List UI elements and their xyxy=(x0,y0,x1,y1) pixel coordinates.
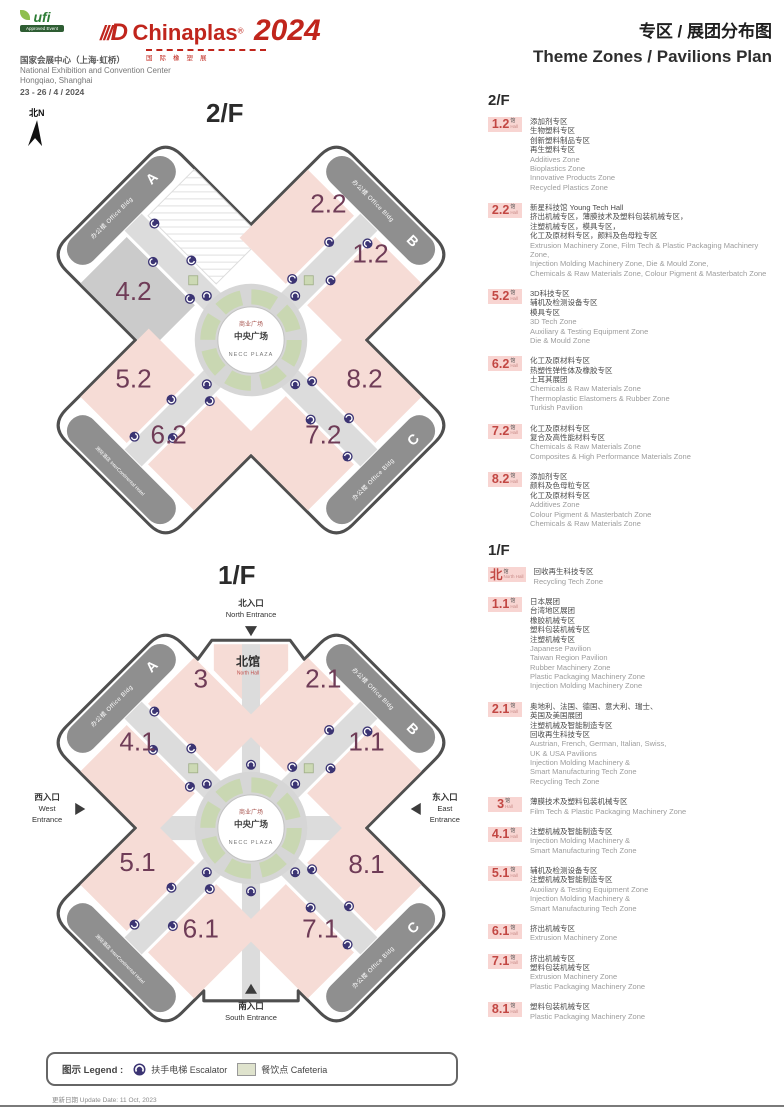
hall-number-4-1: 4.1 xyxy=(119,727,155,757)
zones-en: Auxiliary & Testing Equipment Zone Injec… xyxy=(530,885,774,913)
hall-suffix-en: Hall xyxy=(510,211,518,216)
hall-number-2-2: 2.2 xyxy=(310,188,346,218)
hall-suffix-en: Hall xyxy=(510,710,518,715)
escalator-icon xyxy=(202,379,212,389)
zones-zh: 化工及原材料专区 复合及高性能材料专区 xyxy=(530,424,774,443)
hall-section-2-2: 2.2 馆Hall 新星科技馆 Young Tech Hall 挤出机械专区，薄… xyxy=(488,203,778,278)
hall-number-4-2: 4.2 xyxy=(115,276,151,306)
plaza-label-bottom: NECC PLAZA xyxy=(229,352,274,358)
event-dates: 23 - 26 / 4 / 2024 xyxy=(20,87,171,98)
hall-number: 8.1 xyxy=(492,1003,509,1016)
venue-en: National Exhibition and Convention Cente… xyxy=(20,66,171,76)
cafeteria-marker xyxy=(189,276,198,285)
plaza-label-bottom: NECC PLAZA xyxy=(229,840,274,846)
zones-en: 3D Tech Zone Auxiliary & Testing Equipme… xyxy=(530,317,774,345)
page-title-zh: 专区 / 展团分布图 xyxy=(533,20,772,45)
hall-number: 5.2 xyxy=(492,290,509,303)
hall-number-5-2: 5.2 xyxy=(115,363,151,393)
hall-section-1-2: 1.2 馆Hall 添加剂专区 生物塑料专区 创新塑料制品专区 再生塑料专区Ad… xyxy=(488,117,778,192)
zones-zh: 3D科技专区 辅机及检测设备专区 模具专区 xyxy=(530,289,774,317)
hall-number-1-1: 1.1 xyxy=(348,727,384,757)
east-entrance-en1: East xyxy=(437,804,453,813)
zones-zh: 化工及原材料专区 热塑性弹性体及橡胶专区 土耳其展团 xyxy=(530,356,774,384)
hall-section-2-1: 2.1 馆Hall 奥地利、法国、德国、意大利、瑞士、 英国及美国展团 注塑机械… xyxy=(488,702,778,786)
hall-number-7-2: 7.2 xyxy=(305,420,341,450)
zones-zh: 辅机及检测设备专区 注塑机械及智能制造专区 xyxy=(530,866,774,885)
update-date: 更新日期 Update Date: 11 Oct, 2023 xyxy=(52,1094,157,1104)
hall-suffix-en: Hall xyxy=(510,1010,518,1015)
hall-number-8-1: 8.1 xyxy=(348,849,384,879)
legend-escalator-label: 扶手电梯 Escalator xyxy=(151,1063,227,1076)
hall-badge: 北 馆North Hall xyxy=(488,567,526,582)
hall-section-6-2: 6.2 馆Hall 化工及原材料专区 热塑性弹性体及橡胶专区 土耳其展团Chem… xyxy=(488,356,778,412)
zones-en: Chemicals & Raw Materials Zone Composite… xyxy=(530,442,774,461)
hall-section-north: 北 馆North Hall 回收再生科技专区Recycling Tech Zon… xyxy=(488,567,778,586)
zone-listing-sidebar: 2/F 1.2 馆Hall 添加剂专区 生物塑料专区 创新塑料制品专区 再生塑料… xyxy=(488,92,778,1032)
hall-suffix-en: Hall xyxy=(510,874,518,879)
logo-slashes: /// xyxy=(100,23,111,45)
hall-badge: 8.2 馆Hall xyxy=(488,472,522,487)
plaza-label-top: 商业广场 xyxy=(239,320,263,328)
escalator-icon xyxy=(290,779,300,789)
hall-suffix-en: North Hall xyxy=(504,575,524,580)
north-entrance-en: North Entrance xyxy=(226,610,277,619)
hall-section-7-2: 7.2 馆Hall 化工及原材料专区 复合及高性能材料专区Chemicals &… xyxy=(488,424,778,462)
ufi-logo: ufi Approved Event xyxy=(20,10,64,32)
registered-mark: ® xyxy=(238,27,244,36)
plaza-label-mid: 中央广场 xyxy=(234,331,269,341)
hall-suffix-en: Hall xyxy=(510,125,518,130)
hall-number-5-1: 5.1 xyxy=(119,847,155,877)
escalator-icon xyxy=(246,760,256,770)
hall-section-1-1: 1.1 馆Hall 日本展团 台湾地区展团 橡胶机械专区 塑料包装机械专区 注塑… xyxy=(488,597,778,691)
escalator-icon xyxy=(246,886,256,896)
escalator-icon xyxy=(290,379,300,389)
down-arrow-icon xyxy=(245,626,257,636)
hall-number: 7.2 xyxy=(492,425,509,438)
plaza-label-top: 商业广场 xyxy=(239,808,263,816)
hall-suffix-en: Hall xyxy=(510,297,518,302)
zones-zh: 日本展团 台湾地区展团 橡胶机械专区 塑料包装机械专区 注塑机械专区 xyxy=(530,597,774,644)
hall-number: 8.2 xyxy=(492,473,509,486)
zones-en: Chemicals & Raw Materials Zone Thermopla… xyxy=(530,384,774,412)
escalator-icon xyxy=(202,779,212,789)
venue-address: 国家会展中心（上海·虹桥） National Exhibition and Co… xyxy=(20,55,171,98)
west-entrance-zh: 西入口 xyxy=(34,792,60,802)
hall-badge: 1.1 馆Hall xyxy=(488,597,522,612)
hall-number: 4.1 xyxy=(492,828,509,841)
brand-name: Chinaplas xyxy=(132,20,237,45)
north-hall-zh: 北馆 xyxy=(236,653,260,668)
hall-suffix-en: Hall xyxy=(510,605,518,610)
escalator-icon xyxy=(290,291,300,301)
legend-cafeteria-label: 餐饮点 Cafeteria xyxy=(261,1063,327,1076)
hall-number-1-2: 1.2 xyxy=(352,239,388,269)
cafeteria-marker xyxy=(189,764,198,773)
hall-suffix-en: Hall xyxy=(505,805,513,810)
escalator-icon xyxy=(202,291,212,301)
hall-number-8-2: 8.2 xyxy=(346,363,382,393)
zones-en: Plastic Packaging Machinery Zone xyxy=(530,1012,774,1021)
zones-zh: 挤出机械专区 塑料包装机械专区 xyxy=(530,954,774,973)
zones-en: Austrian, French, German, Italian, Swiss… xyxy=(530,739,774,786)
west-entrance: 西入口 West Entrance xyxy=(32,792,85,824)
floor-map-1f: 办公楼 Office Bldg A 办公楼 Office Bldg B 洲际酒店… xyxy=(22,592,480,1044)
hall-suffix-en: Hall xyxy=(510,431,518,436)
hall-badge: 8.1 馆Hall xyxy=(488,1002,522,1017)
cafeteria-marker xyxy=(304,764,313,773)
escalator-icon xyxy=(202,867,212,877)
hall-badge: 1.2 馆Hall xyxy=(488,117,522,132)
legend-cafeteria: 餐饮点 Cafeteria xyxy=(237,1063,327,1076)
escalator-icon xyxy=(133,1063,146,1076)
north-arrow-icon xyxy=(28,120,42,146)
zones-en: Extrusion Machinery Zone xyxy=(530,933,774,942)
zones-zh: 塑料包装机械专区 xyxy=(530,1002,774,1011)
zones-zh: 挤出机械专区 xyxy=(530,924,774,933)
north-hall-en: North Hall xyxy=(237,670,259,676)
hall-number: 1.2 xyxy=(492,118,509,131)
east-entrance: 东入口 East Entrance xyxy=(411,792,460,824)
zones-zh: 添加剂专区 生物塑料专区 创新塑料制品专区 再生塑料专区 xyxy=(530,117,774,155)
page-bottom-rule xyxy=(0,1105,784,1107)
hall-number: 7.1 xyxy=(492,955,509,968)
hall-section-3: 3 馆Hall 薄膜技术及塑料包装机械专区Film Tech & Plastic… xyxy=(488,797,778,816)
brand-year: 2024 xyxy=(254,14,321,47)
zones-en: Film Tech & Plastic Packaging Machinery … xyxy=(530,807,774,816)
hall-section-6-1: 6.1 馆Hall 挤出机械专区Extrusion Machinery Zone xyxy=(488,924,778,943)
hall-number: 2.2 xyxy=(492,204,509,217)
legend-label: 图示 Legend : xyxy=(62,1062,123,1076)
west-entrance-en2: Entrance xyxy=(32,815,62,824)
south-entrance-zh: 南入口 xyxy=(238,1001,264,1011)
hall-number-3: 3 xyxy=(194,663,209,693)
hall-number: 6.1 xyxy=(492,925,509,938)
hall-section-7-1: 7.1 馆Hall 挤出机械专区 塑料包装机械专区Extrusion Machi… xyxy=(488,954,778,992)
hall-number: 2.1 xyxy=(492,703,509,716)
zones-zh: 奥地利、法国、德国、意大利、瑞士、 英国及美国展团 注塑机械及智能制造专区 回收… xyxy=(530,702,774,740)
page-title-en: Theme Zones / Pavilions Plan xyxy=(533,45,772,70)
legend-escalator: 扶手电梯 Escalator xyxy=(133,1063,227,1076)
hall-badge: 4.1 馆Hall xyxy=(488,827,522,842)
cafeteria-swatch-icon xyxy=(237,1063,256,1076)
escalator-icon xyxy=(290,867,300,877)
hall-number: 3 xyxy=(497,798,504,811)
zones-en: Japanese Pavilion Taiwan Region Pavilion… xyxy=(530,644,774,691)
hall-suffix-en: Hall xyxy=(510,835,518,840)
ufi-approved-label: Approved Event xyxy=(20,25,64,32)
zones-zh: 回收再生科技专区 xyxy=(534,567,778,576)
zones-zh: 新星科技馆 Young Tech Hall 挤出机械专区，薄膜技术及塑料包装机械… xyxy=(530,203,774,241)
hall-badge: 6.1 馆Hall xyxy=(488,924,522,939)
cafeteria-marker xyxy=(304,276,313,285)
hall-number-7-1: 7.1 xyxy=(302,914,338,944)
hall-section-5-2: 5.2 馆Hall 3D科技专区 辅机及检测设备专区 模具专区3D Tech Z… xyxy=(488,289,778,345)
hall-number: 1.1 xyxy=(492,598,509,611)
map-legend: 图示 Legend : 扶手电梯 Escalator 餐饮点 Cafeteria xyxy=(46,1052,458,1086)
zones-zh: 注塑机械及智能制造专区 xyxy=(530,827,774,836)
sidebar-header-2f: 2/F xyxy=(488,92,778,109)
hall-badge: 7.1 馆Hall xyxy=(488,954,522,969)
hall-suffix-en: Hall xyxy=(510,364,518,369)
hall-number-2-1: 2.1 xyxy=(305,663,341,693)
hall-section-5-1: 5.1 馆Hall 辅机及检测设备专区 注塑机械及智能制造专区Auxiliary… xyxy=(488,866,778,913)
sidebar-header-1f: 1/F xyxy=(488,542,778,559)
east-entrance-en2: Entrance xyxy=(430,815,460,824)
floor-label-1f: 1/F xyxy=(218,560,256,591)
hall-section-8-1: 8.1 馆Hall 塑料包装机械专区Plastic Packaging Mach… xyxy=(488,1002,778,1021)
zones-zh: 添加剂专区 颜料及色母粒专区 化工及原材料专区 xyxy=(530,472,774,500)
hall-section-4-1: 4.1 馆Hall 注塑机械及智能制造专区Injection Molding M… xyxy=(488,827,778,855)
plaza-label-mid: 中央广场 xyxy=(234,819,269,829)
hall-badge: 2.2 馆Hall xyxy=(488,203,522,218)
hall-number-6-1: 6.1 xyxy=(183,914,219,944)
zones-en: Additives Zone Bioplastics Zone Innovati… xyxy=(530,155,774,193)
zones-en: Recycling Tech Zone xyxy=(534,577,778,586)
hall-badge: 6.2 馆Hall xyxy=(488,356,522,371)
page-title: 专区 / 展团分布图 Theme Zones / Pavilions Plan xyxy=(533,20,772,69)
hall-number: 6.2 xyxy=(492,358,509,371)
south-entrance-en: South Entrance xyxy=(225,1013,277,1022)
zones-zh: 薄膜技术及塑料包装机械专区 xyxy=(530,797,774,806)
hall-section-8-2: 8.2 馆Hall 添加剂专区 颜料及色母粒专区 化工及原材料专区Additiv… xyxy=(488,472,778,528)
west-entrance-en1: West xyxy=(39,804,57,813)
hall-number: 北 xyxy=(490,569,503,582)
logo-d: D xyxy=(111,19,128,46)
right-arrow-icon xyxy=(75,803,85,815)
hall-suffix-en: Hall xyxy=(510,961,518,966)
north-compass: 北N xyxy=(28,107,45,146)
venue-zh: 国家会展中心（上海·虹桥） xyxy=(20,55,171,66)
zones-en: Extrusion Machinery Zone Plastic Packagi… xyxy=(530,972,774,991)
compass-label: 北N xyxy=(29,107,45,118)
east-entrance-zh: 东入口 xyxy=(432,792,458,802)
hall-suffix-en: Hall xyxy=(510,932,518,937)
north-entrance: 北入口 North Entrance xyxy=(226,598,277,636)
hall-badge: 3 馆Hall xyxy=(488,797,522,812)
hall-badge: 5.2 馆Hall xyxy=(488,289,522,304)
zones-en: Extrusion Machinery Zone, Film Tech & Pl… xyxy=(530,241,774,279)
zones-en: Injection Molding Machinery & Smart Manu… xyxy=(530,836,774,855)
hall-badge: 2.1 馆Hall xyxy=(488,702,522,717)
hall-number-6-2: 6.2 xyxy=(150,420,186,450)
hall-number: 5.1 xyxy=(492,867,509,880)
hall-badge: 5.1 馆Hall xyxy=(488,866,522,881)
venue-city: Hongqiao, Shanghai xyxy=(20,76,171,86)
hall-suffix-en: Hall xyxy=(510,480,518,485)
zones-en: Additives Zone Colour Pigment & Masterba… xyxy=(530,500,774,528)
hall-badge: 7.2 馆Hall xyxy=(488,424,522,439)
left-arrow-icon xyxy=(411,803,421,815)
floor-map-2f: 办公楼 Office Bldg A 办公楼 Office Bldg B 洲际酒店… xyxy=(22,104,480,556)
north-entrance-zh: 北入口 xyxy=(238,598,264,608)
